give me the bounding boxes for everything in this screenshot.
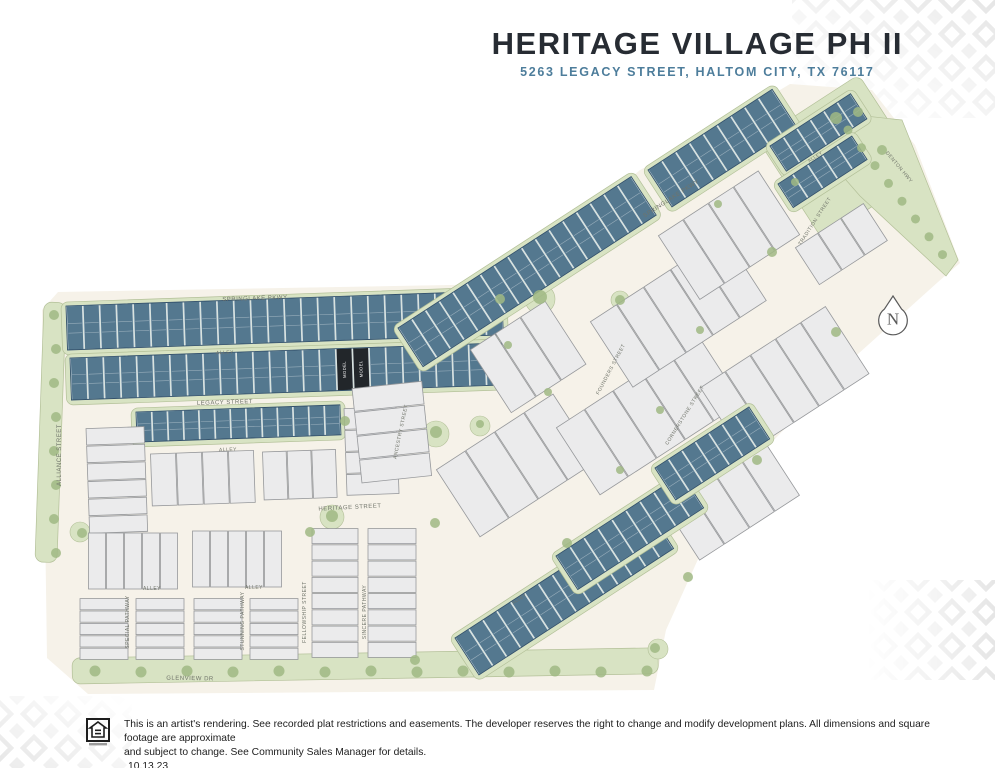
lot-row xyxy=(136,599,184,660)
street-label: ALLEY xyxy=(245,585,263,591)
site-plan-page: MODELMODELSPRINGLAKE PKWYALLEYLEGACY STR… xyxy=(0,0,995,768)
street-label: SPECIAL PATHWAY xyxy=(125,595,131,648)
plan-date: 10.13.23 xyxy=(128,761,168,768)
street-label: SINCERE PATHWAY xyxy=(362,585,368,640)
lot-row xyxy=(80,599,128,660)
site-plan-map: MODELMODELSPRINGLAKE PKWYALLEYLEGACY STR… xyxy=(0,0,995,768)
street-label: ALLEY xyxy=(143,586,161,592)
north-label: N xyxy=(887,310,899,329)
street-label: ALLEY xyxy=(216,350,234,357)
street-label: ALLIANCE STREET xyxy=(57,424,63,486)
lot-row xyxy=(250,599,298,660)
street-label: ALLEY xyxy=(219,447,237,454)
community-address: 5263 LEGACY STREET, HALTOM CITY, TX 7611… xyxy=(492,65,903,79)
community-title: HERITAGE VILLAGE PH II xyxy=(492,26,903,62)
lot-row xyxy=(193,531,282,587)
model-home-label: MODEL xyxy=(358,360,364,377)
disclaimer-text: This is an artist's rendering. See recor… xyxy=(124,718,946,768)
street-label: FELLOWSHIP STREET xyxy=(302,581,308,643)
street-label: STUNNING PATHWAY xyxy=(240,591,246,650)
lot-row xyxy=(262,449,337,500)
lot-row xyxy=(131,401,346,447)
model-home-label: MODEL xyxy=(342,361,348,378)
disclaimer-line-1: This is an artist's rendering. See recor… xyxy=(124,718,946,746)
equal-housing-icon xyxy=(86,718,110,748)
footer: This is an artist's rendering. See recor… xyxy=(86,718,946,768)
lot-row xyxy=(89,533,178,589)
header: HERITAGE VILLAGE PH II 5263 LEGACY STREE… xyxy=(492,26,903,79)
lot-row xyxy=(194,599,242,660)
street-label: GLENVIEW DR xyxy=(166,676,214,683)
disclaimer-line-2: and subject to change. See Community Sal… xyxy=(124,746,946,760)
